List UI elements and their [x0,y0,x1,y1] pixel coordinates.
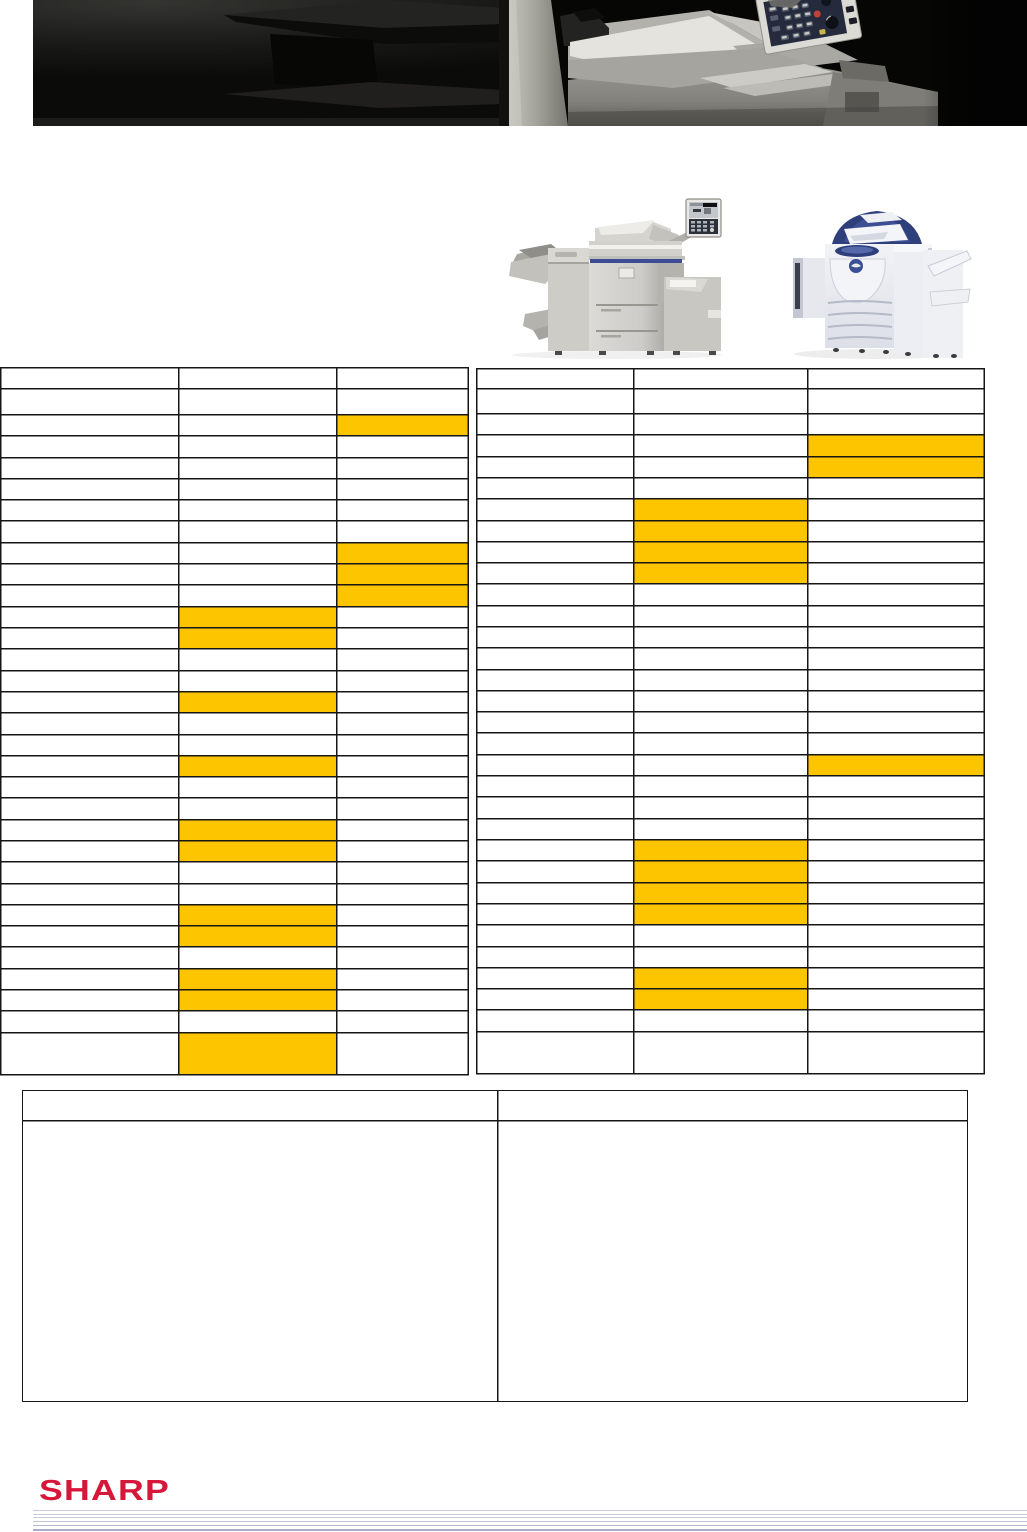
svg-text:SHARP: SHARP [39,1476,170,1504]
